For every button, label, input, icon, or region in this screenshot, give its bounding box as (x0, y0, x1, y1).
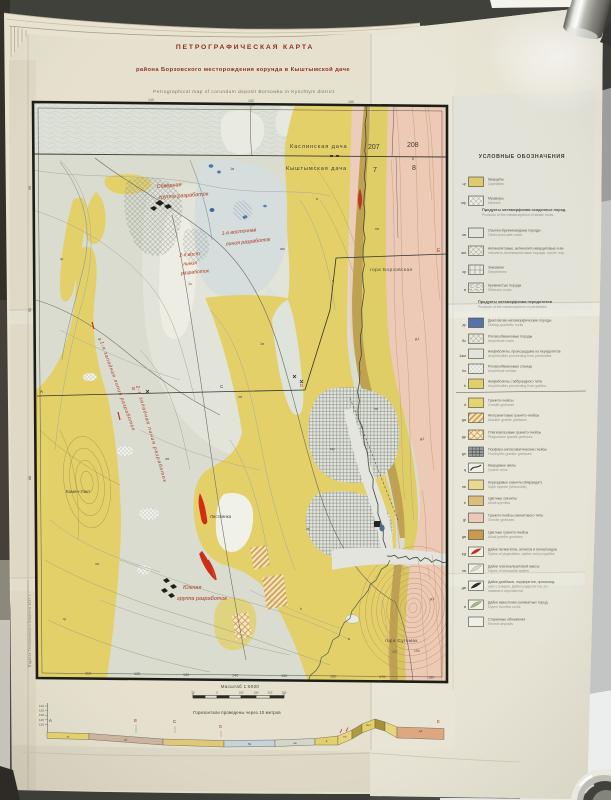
svg-text:140: 140 (39, 704, 44, 708)
svg-text:Гранито-гнейсы сиенитового тип: Гранито-гнейсы сиенитового типа (488, 514, 543, 518)
svg-text:гора Борзовская: гора Борзовская (370, 267, 413, 272)
svg-text:Quartz veins: Quartz veins (488, 468, 508, 472)
svg-text:1в: 1в (260, 342, 264, 346)
svg-text:207: 207 (368, 144, 380, 151)
svg-text:130: 130 (183, 673, 189, 677)
svg-text:Диаллагово-метаморфические пор: Диаллагово-метаморфические породы (488, 319, 552, 323)
svg-text:Alaskite granite gneisses: Alaskite granite gneisses (488, 418, 527, 422)
svg-text:8: 8 (412, 165, 416, 172)
svg-text:1c: 1c (188, 282, 192, 286)
svg-text:Dykes hornfels rocks: Dykes hornfels rocks (488, 605, 521, 609)
svg-text:Quartzites: Quartzites (488, 182, 504, 186)
svg-text:120: 120 (39, 722, 44, 726)
svg-text:пв: пв (462, 485, 466, 489)
svg-text:Южная: Южная (183, 585, 201, 591)
svg-text:1в: 1в (230, 167, 234, 171)
svg-text:Корундовые сиениты (Марундит): Корундовые сиениты (Марундит) (488, 481, 542, 485)
svg-text:ов: ов (95, 562, 99, 566)
svg-text:УСЛОВНЫЕ ОБОЗНАЧЕНИЯ: УСЛОВНЫЕ ОБОЗНАЧЕНИЯ (479, 154, 565, 160)
svg-text:135: 135 (39, 709, 44, 713)
svg-text:100: 100 (239, 690, 244, 694)
svg-text:140: 140 (232, 673, 238, 677)
svg-text:150: 150 (248, 99, 254, 103)
svg-text:Products of the metamorphism o: Products of the metamorphism of peridoti… (478, 305, 547, 309)
svg-text:Роговообманковые сланцы: Роговообманковые сланцы (488, 365, 533, 369)
svg-text:160: 160 (348, 100, 354, 104)
svg-text:125: 125 (39, 718, 44, 722)
svg-text:7: 7 (373, 167, 377, 174)
svg-text:А: А (40, 389, 43, 394)
svg-text:Дайки диабазов, порфиритов, пр: Дайки диабазов, порфиритов, происшед- (488, 580, 556, 584)
svg-text:ПЕТРОГРАФИЧЕСКАЯ КАРТА: ПЕТРОГРАФИЧЕСКАЯ КАРТА (176, 44, 314, 51)
svg-text:цг: цг (462, 182, 466, 186)
svg-text:1ам: 1ам (459, 354, 466, 358)
svg-text:92: 92 (28, 308, 32, 312)
svg-text:мр: мр (461, 201, 466, 205)
svg-text:Granite gneisses: Granite gneisses (488, 518, 515, 522)
svg-text:д1: д1 (419, 729, 423, 733)
svg-text:Дайки пегматитов, аплитов и пе: Дайки пегматитов, аплитов и пегматоидов (488, 548, 557, 552)
svg-text:150: 150 (281, 674, 287, 678)
svg-text:Цветные гранито-гнейсы: Цветные гранито-гнейсы (488, 531, 529, 535)
svg-text:Старинные обнажения: Старинные обнажения (488, 618, 525, 622)
svg-text:h: h (300, 607, 302, 611)
svg-text:группа разработок: группа разработок (177, 596, 227, 602)
svg-text:д1: д1 (420, 437, 424, 441)
svg-text:160: 160 (330, 675, 336, 679)
svg-text:Кварцевые жилы: Кварцевые жилы (488, 464, 516, 468)
svg-text:Гранито-гнейсы: Гранито-гнейсы (488, 399, 514, 403)
svg-text:пв: пв (462, 569, 466, 573)
svg-text:пв: пв (375, 227, 379, 231)
svg-text:Дайки известково-силикатных по: Дайки известково-силикатных пород (488, 601, 548, 605)
svg-text:Siliceous rocks: Siliceous rocks (488, 288, 512, 292)
svg-text:Amphibolites proceeding from p: Amphibolites proceeding from peridotites (488, 354, 552, 358)
svg-text:Plagioclase granite gneisses: Plagioclase granite gneisses (488, 435, 533, 439)
svg-text:кв: кв (306, 527, 310, 531)
svg-text:Плагиоклазовые гранито-гнейсы: Плагиоклазовые гранито-гнейсы (488, 431, 542, 435)
svg-text:зр: зр (462, 270, 466, 274)
svg-text:110: 110 (85, 672, 91, 676)
svg-text:D: D (219, 724, 222, 729)
svg-text:200: 200 (268, 690, 273, 694)
svg-text:150: 150 (254, 690, 259, 694)
svg-text:Porphyritic granitic gneisses: Porphyritic granitic gneisses (488, 452, 532, 456)
svg-text:Кремнистые породы: Кремнистые породы (488, 284, 522, 288)
svg-text:Marbles: Marbles (488, 201, 501, 205)
svg-text:50: 50 (191, 690, 195, 694)
svg-text:ам: ам (280, 247, 285, 251)
svg-text:Кыштымская дача: Кыштымская дача (286, 166, 347, 172)
svg-text:дг: дг (462, 323, 466, 327)
svg-text:ов: ов (165, 457, 169, 461)
svg-text:Dykes of pegmatites, aplites a: Dykes of pegmatites, aplites and propyli… (488, 552, 555, 556)
svg-text:ов: ов (238, 395, 242, 399)
svg-text:96: 96 (28, 186, 32, 190)
svg-text:в: в (464, 288, 466, 292)
svg-text:140: 140 (148, 98, 154, 102)
svg-text:Diallag-quartzitic rocks: Diallag-quartzitic rocks (488, 323, 523, 327)
svg-text:8: 8 (412, 157, 414, 161)
svg-text:Кварциты: Кварциты (488, 178, 504, 182)
svg-text:тинолито-полевошпатовые породы: тинолито-полевошпатовые породы, листв. п… (488, 251, 565, 255)
svg-text:Горизонтали проведены через 10: Горизонтали проведены через 10 метров (193, 710, 281, 715)
svg-text:gl: gl (463, 518, 466, 522)
svg-text:цг: цг (60, 257, 64, 261)
svg-text:Камен-Узел: Камен-Узел (66, 489, 90, 494)
svg-text:Мраморы: Мраморы (488, 197, 504, 201)
svg-text:Листвянка: Листвянка (210, 514, 232, 519)
svg-text:Цветные сиениты: Цветные сиениты (488, 497, 517, 501)
svg-text:208: 208 (407, 142, 419, 149)
svg-text:170: 170 (379, 675, 385, 679)
svg-text:Petrographical map of corundum: Petrographical map of corundum deposit B… (153, 89, 335, 95)
svg-text:д1: д1 (124, 738, 128, 742)
svg-text:194: 194 (414, 649, 420, 653)
svg-text:250: 250 (282, 690, 287, 694)
svg-text:Актинолитовые, актинолито-квар: Актинолитовые, актинолито-кварцитовые и … (488, 247, 565, 251)
svg-text:гора Сугомак: гора Сугомак (385, 638, 418, 643)
svg-text:Змеевики: Змеевики (488, 266, 504, 270)
svg-text:Дайки плагиоклазитовой массы: Дайки плагиоклазитовой массы (488, 565, 540, 569)
svg-text:gв: gв (462, 535, 466, 539)
svg-text:b: b (464, 384, 466, 388)
svg-text:gн: gн (462, 452, 466, 456)
svg-text:Амфиболиты, габброидного типа: Амфиболиты, габброидного типа (488, 380, 542, 384)
svg-text:88: 88 (28, 476, 32, 480)
svg-text:е: е (464, 501, 466, 505)
svg-text:В: В (132, 386, 135, 391)
svg-text:pg: pg (462, 552, 466, 556)
svg-text:А: А (49, 718, 52, 723)
svg-text:Продукты метаморфизма перидоти: Продукты метаморфизма перидотитов (478, 300, 553, 304)
svg-text:197: 197 (392, 650, 398, 654)
svg-text:в: в (316, 197, 318, 201)
svg-text:gp: gp (462, 435, 466, 439)
svg-text:цг: цг (98, 337, 102, 341)
svg-text:Amphibole rocks: Amphibole rocks (488, 339, 514, 343)
svg-text:Products of the metamorphism o: Products of the metamorphism of stratic … (482, 213, 553, 217)
svg-text:Amphibole schists: Amphibole schists (488, 369, 516, 373)
svg-text:Продукты метаморфизма осадочны: Продукты метаморфизма осадочных пород (482, 208, 566, 212)
svg-text:Порфиро-метасоматические гнейс: Порфиро-метасоматические гнейсы (488, 448, 547, 452)
svg-text:Dykes of kersantite aplites: Dykes of kersantite aplites (488, 569, 529, 573)
svg-text:д1: д1 (430, 597, 434, 601)
svg-text:Осыпно-брекчиевидные породы: Осыпно-брекчиевидные породы (488, 229, 541, 233)
svg-text:Е: Е (437, 719, 440, 724)
svg-text:130: 130 (39, 713, 44, 717)
svg-text:Granite gneisses: Granite gneisses (488, 403, 515, 407)
svg-text:С: С (173, 719, 176, 724)
svg-text:Recent deposits: Recent deposits (488, 622, 513, 626)
svg-text:Obvio-brecciate rocks: Obvio-brecciate rocks (488, 233, 522, 237)
svg-text:цг: цг (67, 735, 70, 739)
svg-text:Alkali syenites: Alkali syenites (488, 501, 510, 505)
svg-text:д1: д1 (415, 337, 419, 341)
svg-text:Апогранитовые гранито-гнейсы: Апогранитовые гранито-гнейсы (488, 414, 540, 418)
svg-text:Амфиболиты, происшедшие из пер: Амфиболиты, происшедшие из перидотитов (488, 350, 561, 354)
svg-text:мр: мр (330, 447, 335, 451)
svg-text:цг: цг (63, 617, 67, 621)
svg-text:ам: ам (461, 251, 466, 255)
svg-text:Масштаб 1:5000: Масштаб 1:5000 (221, 684, 260, 689)
svg-text:Dyke syenite (Marundite): Dyke syenite (Marundite) (488, 485, 527, 489)
svg-text:в: в (464, 605, 466, 609)
svg-text:нв: нв (374, 407, 378, 411)
svg-text:Каслинская дача: Каслинская дача (290, 144, 347, 150)
svg-text:дв: дв (462, 586, 466, 590)
svg-text:180: 180 (428, 676, 434, 680)
svg-text:Serpentines: Serpentines (488, 270, 507, 274)
svg-text:ов: ов (462, 233, 466, 237)
svg-text:ов: ов (293, 741, 297, 745)
svg-text:Alkali granite gneisses: Alkali granite gneisses (488, 535, 523, 539)
svg-text:hs: hs (462, 369, 466, 373)
svg-text:района Борзовского месторожден: района Борзовского месторождения корунда… (136, 66, 350, 73)
svg-text:120: 120 (134, 672, 140, 676)
svg-text:пз-т: пз-т (366, 723, 372, 727)
svg-text:Amphibolites proceeding from g: Amphibolites proceeding from gabbro (488, 384, 546, 388)
svg-text:в: в (348, 637, 350, 641)
svg-text:Роговообманковые породы: Роговообманковые породы (488, 335, 533, 339)
svg-text:Издание Геологического Комитет: Издание Геологического Комитета 1927 г. (28, 594, 32, 667)
svg-text:В: В (134, 718, 137, 723)
svg-text:бс: бс (462, 339, 466, 343)
svg-text:ших с изверж. Дайки радиолитов: ших с изверж. Дайки радиолитов, ро- (488, 585, 549, 589)
svg-text:говиков и мусковитов: говиков и мусковитов (488, 589, 523, 593)
svg-text:в: в (332, 279, 334, 283)
svg-text:q: q (464, 468, 466, 472)
svg-text:Тв: Тв (248, 742, 252, 746)
svg-text:d: d (464, 403, 466, 407)
